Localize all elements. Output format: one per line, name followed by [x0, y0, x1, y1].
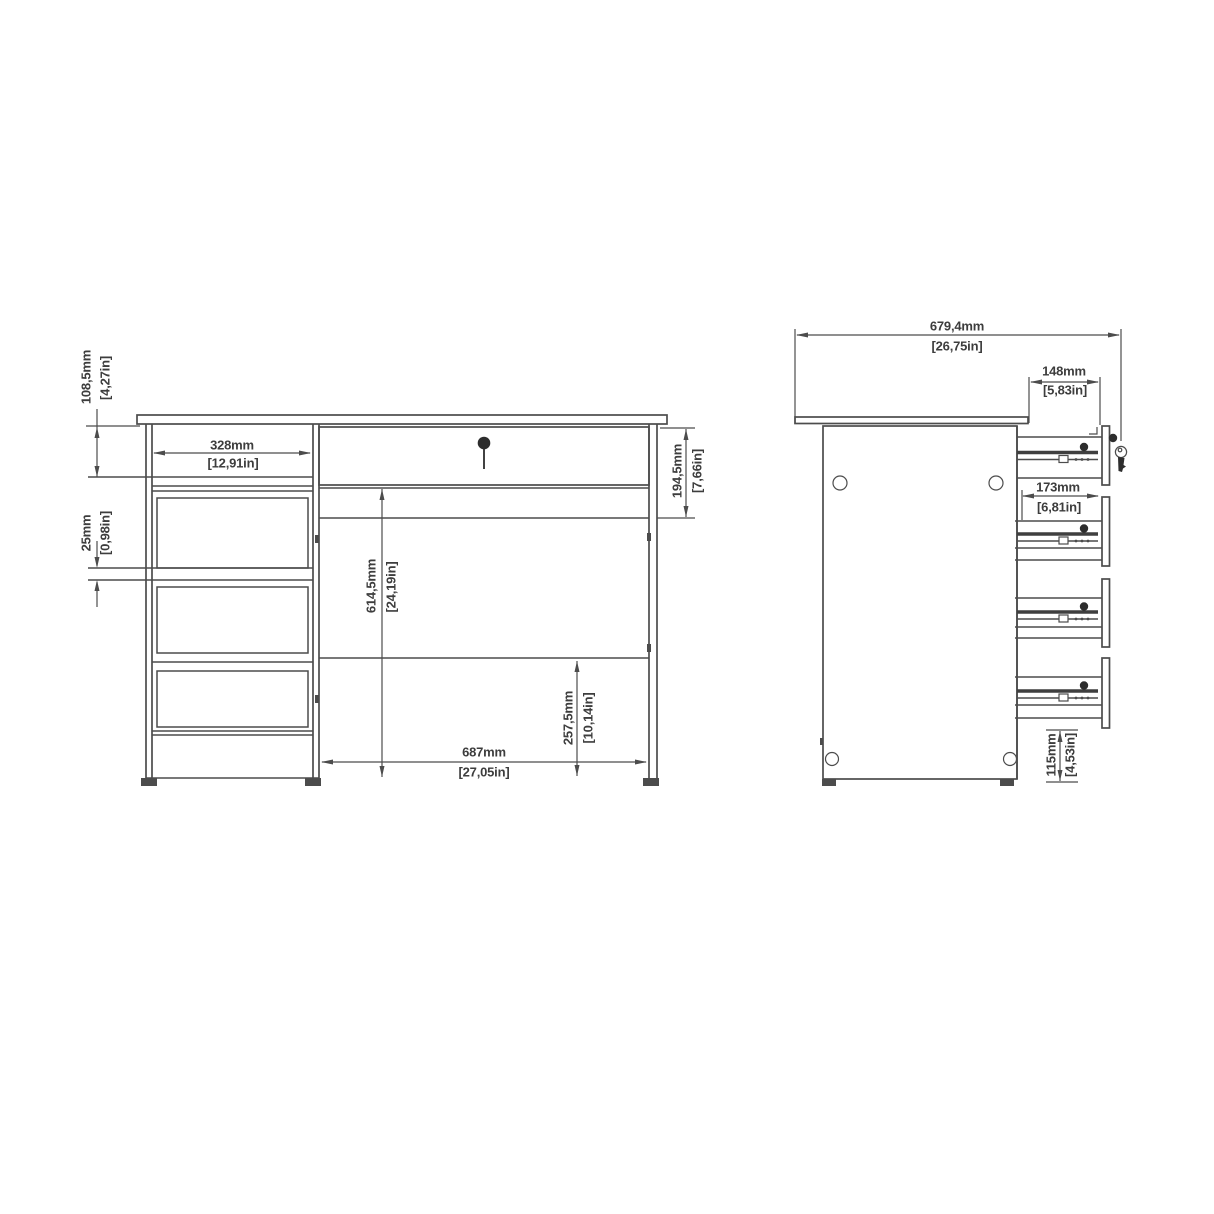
dim-top-drawer-mm: 148mm — [1042, 365, 1086, 378]
dim-knee-height-mm: 614,5mm — [365, 559, 378, 613]
side-desktop — [795, 417, 1028, 424]
dim-bottom-clear-in: [4,53in] — [1064, 733, 1077, 777]
dim-drawer-gap-mm: 25mm — [80, 515, 93, 552]
dim-drawer-gap-in: [0,98in] — [99, 511, 112, 555]
dim-lower-drawer-in: [6,81in] — [1037, 501, 1081, 514]
side-view-structure — [795, 417, 1127, 786]
side-drawer-1 — [1017, 426, 1110, 485]
side-drawer-3 — [1015, 579, 1110, 647]
side-panel — [823, 426, 1017, 779]
dim-knee-height-in: [24,19in] — [385, 562, 398, 613]
dim-modesty-in: [10,14in] — [582, 693, 595, 744]
front-drawer-3 — [157, 587, 308, 653]
keyhole-icon — [478, 437, 491, 469]
dim-drawer-width-mm: 328mm — [210, 439, 254, 452]
dim-knee-width-mm: 687mm — [462, 746, 506, 759]
dim-top-drawer-in: [5,83in] — [1043, 384, 1087, 397]
front-drawer-2 — [157, 498, 308, 568]
drawing-linework — [0, 0, 1214, 1214]
front-desktop — [137, 415, 667, 424]
dim-lower-drawer-mm: 173mm — [1036, 481, 1080, 494]
key-icon — [1109, 434, 1127, 472]
dim-bottom-clear-mm: 115mm — [1045, 733, 1058, 776]
technical-drawing-canvas: 108,5mm [4,27in] 328mm [12,91in] 25mm [0… — [0, 0, 1214, 1214]
dim-knee-width-in: [27,05in] — [459, 766, 510, 779]
dim-total-depth-in: [26,75in] — [932, 340, 983, 353]
front-drawer-4 — [157, 671, 308, 727]
dim-drawer-width-in: [12,91in] — [208, 457, 259, 470]
dim-total-depth-mm: 679,4mm — [930, 320, 984, 333]
dim-apron-height-in: [7,66in] — [691, 449, 704, 493]
dim-top-height-in: [4,27in] — [99, 356, 112, 400]
dim-top-height-mm: 108,5mm — [80, 350, 93, 404]
dim-apron-height-mm: 194,5mm — [671, 444, 684, 498]
side-drawer-4 — [1015, 658, 1110, 728]
dim-modesty-mm: 257,5mm — [562, 691, 575, 745]
